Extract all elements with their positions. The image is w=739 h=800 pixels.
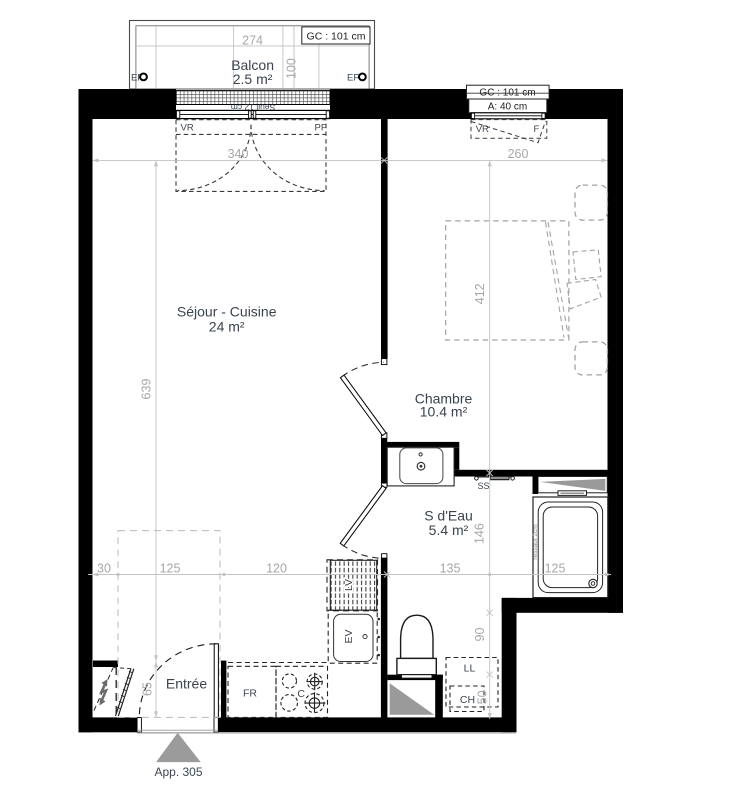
svg-text:EV: EV bbox=[343, 629, 355, 643]
svg-text:100: 100 bbox=[285, 58, 299, 79]
svg-text:LL: LL bbox=[464, 663, 476, 675]
svg-text:90: 90 bbox=[473, 628, 487, 642]
svg-text:VR: VR bbox=[181, 123, 194, 134]
svg-text:PF: PF bbox=[315, 123, 327, 134]
svg-text:Séjour - Cuisine: Séjour - Cuisine bbox=[177, 304, 277, 320]
svg-text:30: 30 bbox=[97, 561, 111, 575]
svg-text:C: C bbox=[297, 688, 305, 700]
svg-text:2.5 m²: 2.5 m² bbox=[233, 71, 273, 87]
svg-text:EP: EP bbox=[347, 73, 360, 84]
svg-text:Entrée: Entrée bbox=[166, 675, 207, 691]
svg-text:125: 125 bbox=[160, 561, 181, 575]
svg-text:CH: CH bbox=[460, 694, 475, 706]
svg-text:639: 639 bbox=[140, 379, 154, 400]
svg-text:65: 65 bbox=[141, 682, 155, 696]
svg-text:274: 274 bbox=[242, 34, 263, 48]
svg-text:146: 146 bbox=[473, 523, 487, 544]
svg-text:GC : 101 cm: GC : 101 cm bbox=[307, 31, 366, 43]
svg-text:F: F bbox=[534, 124, 540, 135]
svg-text:SS: SS bbox=[478, 481, 490, 491]
svg-text:5.4 m²: 5.4 m² bbox=[429, 522, 469, 538]
svg-text:10.4 m²: 10.4 m² bbox=[420, 403, 468, 419]
svg-text:App. 305: App. 305 bbox=[154, 765, 202, 779]
svg-text:260: 260 bbox=[508, 147, 529, 161]
svg-text:ressaut 2cm: ressaut 2cm bbox=[532, 524, 539, 559]
svg-text:24 m²: 24 m² bbox=[209, 319, 245, 335]
svg-text:120: 120 bbox=[266, 561, 287, 575]
svg-text:FR: FR bbox=[243, 688, 257, 700]
svg-text:125: 125 bbox=[545, 561, 566, 575]
svg-text:A: 40 cm: A: 40 cm bbox=[488, 102, 527, 113]
svg-text:412: 412 bbox=[473, 283, 487, 304]
svg-text:340: 340 bbox=[228, 147, 249, 161]
svg-text:LV: LV bbox=[343, 579, 355, 591]
svg-text:50: 50 bbox=[476, 690, 490, 704]
svg-text:135: 135 bbox=[440, 561, 461, 575]
svg-text:VR: VR bbox=[476, 124, 489, 135]
